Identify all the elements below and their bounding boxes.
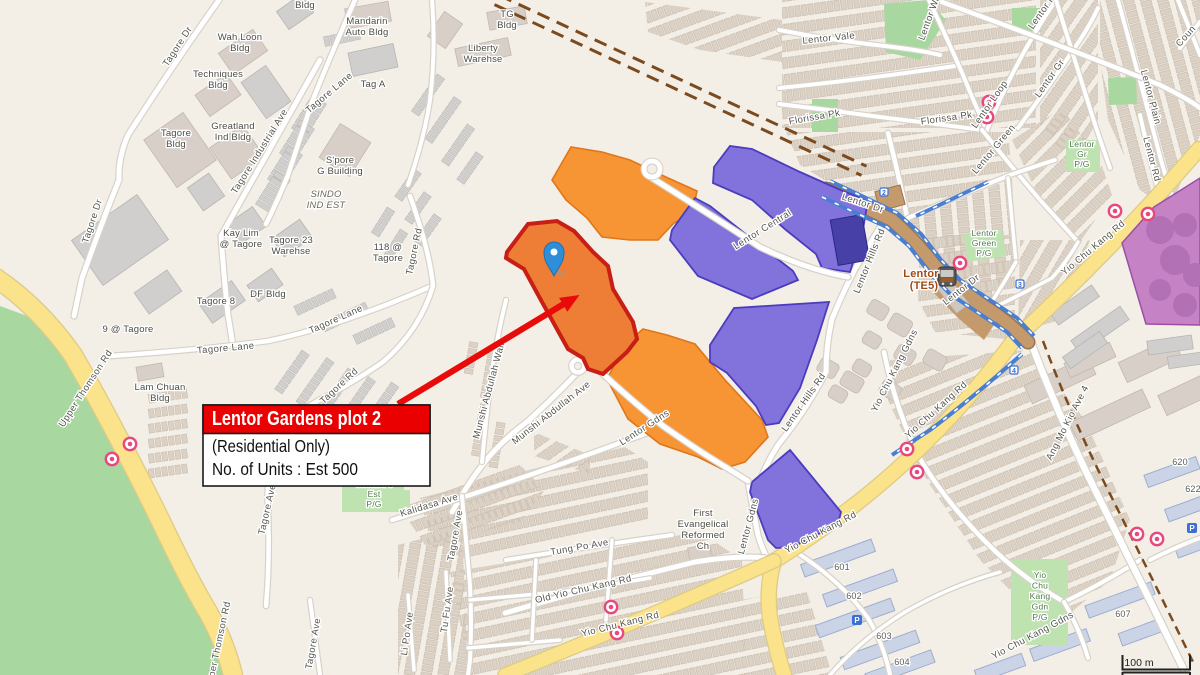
svg-text:G Building: G Building [317, 166, 363, 177]
svg-text:Lam Chuan: Lam Chuan [135, 382, 186, 393]
svg-text:Lentor: Lentor [903, 268, 939, 280]
svg-text:Greatland: Greatland [211, 121, 255, 132]
svg-text:(TE5): (TE5) [910, 280, 939, 292]
svg-text:604: 604 [894, 657, 910, 667]
svg-text:Yio: Yio [1034, 570, 1047, 580]
svg-text:4: 4 [1012, 368, 1016, 375]
svg-text:Auto Bldg: Auto Bldg [346, 27, 389, 38]
svg-text:P: P [854, 616, 860, 625]
svg-text:Bldg: Bldg [497, 20, 517, 31]
svg-text:3: 3 [1018, 282, 1022, 289]
svg-text:S'pore: S'pore [326, 155, 354, 166]
svg-text:IND EST: IND EST [307, 200, 347, 211]
svg-text:Tagore: Tagore [161, 128, 191, 139]
svg-text:P/G: P/G [1032, 612, 1047, 622]
svg-text:Techniques: Techniques [193, 69, 243, 80]
svg-text:602: 602 [846, 591, 862, 601]
svg-text:Ch: Ch [697, 541, 710, 552]
svg-text:100 m: 100 m [1124, 657, 1153, 669]
svg-text:9 @ Tagore: 9 @ Tagore [102, 324, 153, 335]
svg-text:P: P [1189, 524, 1195, 533]
svg-text:620: 620 [1172, 457, 1188, 467]
svg-text:Lentor Gardens plot 2: Lentor Gardens plot 2 [212, 408, 381, 430]
svg-text:DF Bldg: DF Bldg [250, 289, 286, 300]
svg-text:Gr: Gr [1077, 149, 1087, 159]
svg-text:607: 607 [1115, 609, 1131, 619]
svg-text:@ Tagore: @ Tagore [220, 239, 263, 250]
svg-text:603: 603 [876, 631, 892, 641]
svg-text:Bldg: Bldg [230, 43, 250, 54]
svg-text:Bldg: Bldg [150, 393, 170, 404]
svg-text:Tag A: Tag A [361, 79, 386, 90]
svg-text:Lentor: Lentor [971, 228, 996, 238]
svg-text:SINDO: SINDO [310, 189, 341, 200]
svg-text:Kang: Kang [1030, 591, 1051, 601]
svg-text:Tagore: Tagore [373, 253, 403, 264]
svg-text:Gdn: Gdn [1032, 602, 1049, 612]
svg-text:Bldg: Bldg [166, 139, 186, 150]
svg-text:Bldg: Bldg [208, 80, 228, 91]
svg-text:(Residential Only): (Residential Only) [212, 436, 330, 456]
svg-text:Bldg: Bldg [295, 0, 315, 11]
svg-text:Ind Bldg: Ind Bldg [215, 132, 251, 143]
svg-text:No. of Units : Est 500: No. of Units : Est 500 [212, 459, 358, 479]
svg-text:Warehse: Warehse [463, 54, 502, 65]
svg-text:Lentor: Lentor [1069, 139, 1094, 149]
svg-text:Kay Lim: Kay Lim [223, 228, 259, 239]
svg-text:Chu: Chu [1032, 581, 1048, 591]
svg-text:P/G: P/G [976, 248, 991, 258]
svg-text:601: 601 [834, 562, 850, 572]
svg-text:P/G: P/G [366, 499, 381, 509]
svg-text:118 @: 118 @ [374, 242, 402, 253]
svg-text:Tagore 8: Tagore 8 [197, 296, 236, 307]
svg-text:Mandarin: Mandarin [346, 16, 387, 27]
svg-text:Warehse: Warehse [271, 246, 310, 257]
svg-text:Evangelical: Evangelical [678, 519, 729, 530]
svg-text:Est: Est [368, 489, 381, 499]
svg-text:First: First [693, 508, 713, 519]
svg-text:Tagore 23: Tagore 23 [269, 235, 313, 246]
svg-text:622: 622 [1185, 484, 1200, 494]
svg-text:Reformed: Reformed [681, 530, 724, 541]
svg-text:Liberty: Liberty [468, 43, 498, 54]
svg-text:Green: Green [972, 238, 997, 248]
svg-text:TG: TG [500, 9, 514, 20]
svg-text:P/G: P/G [1074, 159, 1089, 169]
svg-text:Wah Loon: Wah Loon [218, 32, 263, 43]
svg-text:2: 2 [882, 190, 886, 197]
